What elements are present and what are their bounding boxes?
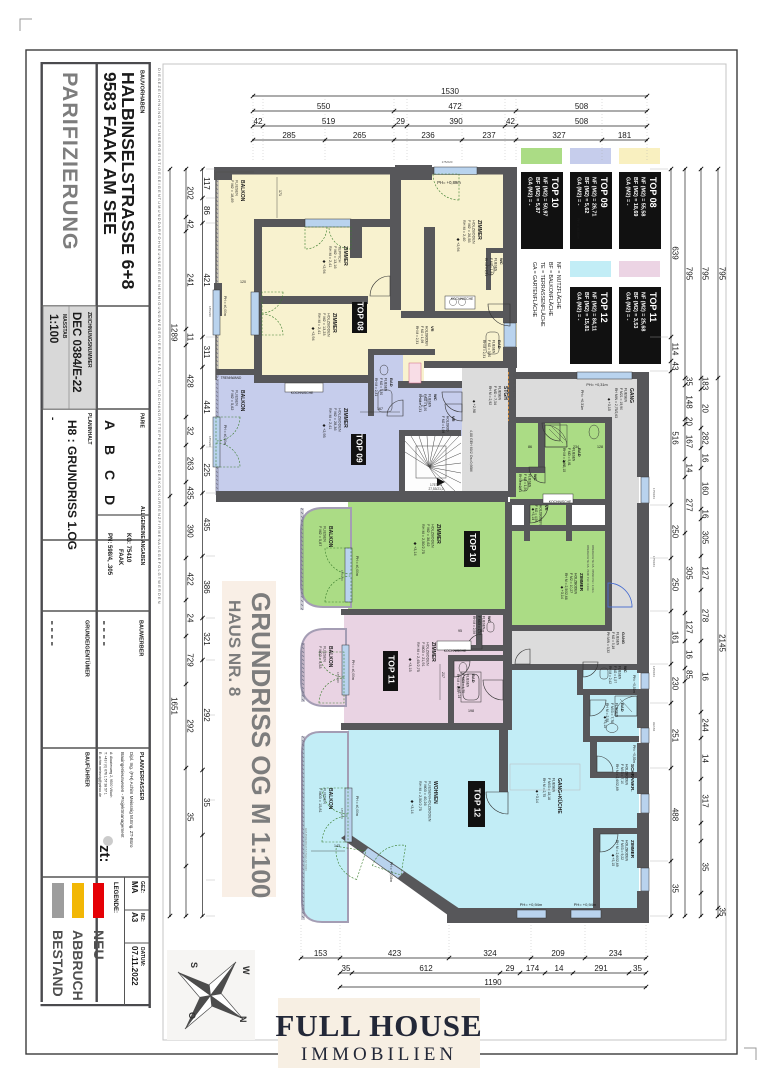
svg-text:174: 174 — [526, 964, 540, 973]
svg-text:FLIESEN/HOLZBODEN: FLIESEN/HOLZBODEN — [427, 781, 431, 822]
svg-text:1651: 1651 — [170, 697, 179, 715]
svg-text:F M2 = 1,98: F M2 = 1,98 — [420, 326, 424, 343]
svg-text:HOLZBODEN: HOLZBODEN — [573, 573, 577, 595]
svg-text:IMMOBILIEN: IMMOBILIEN — [301, 1044, 457, 1065]
svg-text:120: 120 — [240, 280, 246, 284]
svg-text:F MD = 5,81: F MD = 5,81 — [567, 448, 571, 466]
svg-text:1:100: 1:100 — [47, 314, 59, 343]
svg-text:RH M = 2,50/2,75: RH M = 2,50/2,75 — [418, 781, 422, 811]
svg-text:VR: VR — [544, 505, 549, 511]
svg-text:F MD = 7,34: F MD = 7,34 — [493, 386, 497, 405]
svg-text:GANG+KÜCHE: GANG+KÜCHE — [556, 778, 563, 814]
svg-text:F M2 = 28,36: F M2 = 28,36 — [333, 408, 337, 430]
svg-text:42: 42 — [506, 117, 515, 126]
svg-text:171: 171 — [278, 190, 282, 196]
svg-text:F M2 = 3,30: F M2 = 3,30 — [379, 378, 383, 395]
svg-text:795: 795 — [685, 267, 694, 281]
svg-text:292: 292 — [186, 719, 195, 733]
svg-text:PH = ±0,00m: PH = ±0,00m — [351, 660, 355, 680]
svg-text:HOLZBODEN: HOLZBODEN — [624, 764, 628, 786]
svg-text:PH = ±0,00m: PH = ±0,00m — [355, 796, 359, 816]
svg-text:86: 86 — [528, 445, 532, 449]
svg-text:550: 550 — [317, 102, 331, 111]
svg-text:RH M = 2,50/2,75: RH M = 2,50/2,75 — [421, 524, 425, 554]
svg-text:175/220: 175/220 — [442, 160, 453, 164]
svg-text:TOP 08: TOP 08 — [648, 177, 658, 208]
svg-text:265: 265 — [353, 131, 367, 140]
svg-text:237: 237 — [482, 131, 496, 140]
svg-text:BF (M2) = 3,53: BF (M2) = 3,53 — [632, 292, 638, 328]
svg-text:27,53/21,0: 27,53/21,0 — [428, 487, 443, 491]
svg-text:Dipl. Ing. (FH) Achim Meissnig: Dipl. Ing. (FH) Achim Meissnig M.Eng. ZT… — [129, 752, 134, 848]
svg-text:35: 35 — [701, 863, 710, 872]
svg-text:202: 202 — [186, 186, 195, 200]
svg-text:35: 35 — [342, 964, 351, 973]
svg-text:RH MIN = 2,75/2,63: RH MIN = 2,75/2,63 — [614, 388, 618, 418]
svg-text:185/220: 185/220 — [208, 436, 212, 447]
svg-text:NF = NUTZFLÄCHE: NF = NUTZFLÄCHE — [555, 262, 562, 310]
svg-text:20: 20 — [685, 417, 694, 426]
svg-text:F M03 = 21,91: F M03 = 21,91 — [421, 642, 425, 667]
svg-text:TOP 11: TOP 11 — [386, 655, 396, 684]
svg-text:SCHRANKR.: SCHRANKR. — [630, 764, 635, 792]
svg-text:42: 42 — [254, 117, 263, 126]
svg-text:F M2 = 1,50: F M2 = 1,50 — [523, 474, 527, 491]
svg-text:VR: VR — [451, 416, 456, 422]
svg-text:TE = TERRASSENFLÄCHE: TE = TERRASSENFLÄCHE — [539, 262, 546, 327]
svg-text:128: 128 — [597, 445, 603, 449]
svg-text:PH= +0,31m: PH= +0,31m — [580, 390, 584, 410]
svg-text:TOP 10: TOP 10 — [550, 177, 560, 208]
svg-text:◆ +3,15: ◆ +3,15 — [611, 854, 615, 866]
svg-text:RH M = 2,42: RH M = 2,42 — [608, 666, 612, 684]
svg-text:FLIESEN: FLIESEN — [571, 448, 575, 462]
svg-text:161: 161 — [671, 631, 680, 645]
svg-text:BF = BALKONFLÄCHE: BF = BALKONFLÄCHE — [547, 262, 554, 317]
svg-text:GRUNDRISS OG M 1:100: GRUNDRISS OG M 1:100 — [246, 592, 276, 898]
svg-text:PH= +0,92m: PH= +0,92m — [632, 675, 636, 693]
svg-text:HOLZBODEN: HOLZBODEN — [624, 840, 628, 862]
svg-text:PH = ±0,00m: PH = ±0,00m — [576, 218, 580, 239]
svg-text:435: 435 — [202, 518, 211, 532]
svg-text:NF (M2) = 50,97: NF (M2) = 50,97 — [542, 177, 548, 216]
svg-text:117: 117 — [202, 177, 211, 190]
svg-text:FLIESEN: FLIESEN — [322, 646, 326, 662]
svg-text:F M2 = 18,69: F M2 = 18,69 — [230, 180, 234, 202]
svg-text:GA = GARTENFLÄCHE: GA = GARTENFLÄCHE — [531, 262, 538, 318]
svg-text:519: 519 — [322, 117, 336, 126]
svg-text:35: 35 — [633, 964, 642, 973]
svg-text:BF (M2) = 5,62: BF (M2) = 5,62 — [583, 177, 589, 213]
svg-text:35: 35 — [186, 813, 195, 822]
svg-text:A: Akazienweg 2, 9500 Villach: A: Akazienweg 2, 9500 Villach — [109, 752, 113, 797]
svg-text:612: 612 — [419, 964, 433, 973]
svg-text:441: 441 — [202, 400, 211, 414]
svg-text:BAUFÜHRER: BAUFÜHRER — [84, 752, 91, 787]
svg-text:153: 153 — [314, 949, 328, 958]
svg-text:BALKON: BALKON — [327, 788, 333, 810]
svg-text:F M03 = 9,22: F M03 = 9,22 — [620, 840, 624, 860]
svg-text:◆ +3,14: ◆ +3,14 — [410, 800, 414, 814]
svg-text:472: 472 — [448, 102, 462, 111]
svg-text:508: 508 — [575, 102, 589, 111]
svg-text:185/220: 185/220 — [340, 570, 344, 581]
svg-text:NF (M2) = 84,11: NF (M2) = 84,11 — [591, 292, 597, 331]
svg-text:263: 263 — [186, 457, 195, 471]
svg-text:STGH: STGH — [502, 386, 508, 400]
svg-text:F M2 = 26,55: F M2 = 26,55 — [467, 220, 471, 242]
svg-text:NF (M2) = 55,58: NF (M2) = 55,58 — [640, 177, 646, 216]
svg-text:◆ +2,94: ◆ +2,94 — [456, 238, 460, 252]
svg-text:F M03 = 1,57: F M03 = 1,57 — [477, 616, 481, 635]
svg-text:PH = ±0,00m: PH = ±0,00m — [223, 425, 227, 445]
svg-text:WC: WC — [533, 474, 538, 481]
svg-text:GA (M2) = -: GA (M2) = - — [576, 292, 582, 321]
svg-text:F M2 = 5,87: F M2 = 5,87 — [318, 526, 322, 546]
svg-text:◆ +3,14: ◆ +3,14 — [560, 586, 564, 599]
svg-text:24: 24 — [186, 614, 195, 623]
svg-text:16: 16 — [685, 650, 694, 659]
svg-text:BALKON: BALKON — [327, 526, 333, 548]
svg-text:305: 305 — [701, 531, 710, 545]
svg-text:234: 234 — [609, 949, 623, 958]
svg-text:RH M = 2,31: RH M = 2,31 — [482, 340, 486, 358]
svg-text:E: achim.meissnig@yahoo.de: E: achim.meissnig@yahoo.de — [98, 752, 102, 797]
svg-text:ZIMMER: ZIMMER — [342, 246, 348, 266]
svg-text:2145: 2145 — [718, 634, 727, 652]
svg-text:ZIMMER: ZIMMER — [630, 840, 635, 859]
svg-text:42: 42 — [186, 220, 195, 229]
svg-text:DEC 0384/E-22: DEC 0384/E-22 — [70, 312, 82, 393]
svg-text:FLIESEN: FLIESEN — [481, 616, 485, 630]
svg-text:508: 508 — [575, 117, 589, 126]
svg-text:FLIESEN: FLIESEN — [493, 258, 497, 272]
svg-text:F M2 = 1,84: F M2 = 1,84 — [489, 258, 493, 275]
svg-text:390: 390 — [449, 117, 463, 126]
svg-text:HALBINSELSTRASSE 6+8: HALBINSELSTRASSE 6+8 — [118, 72, 138, 290]
svg-text:4,88 GEH 60/2 Os=0,66M: 4,88 GEH 60/2 Os=0,66M — [469, 430, 473, 471]
svg-text:TRENNWAND: TRENNWAND — [221, 376, 242, 380]
svg-text:D I E S E Z E I C H N U N G: D I E S E Z E I C H N U N G I S T U N S … — [157, 68, 162, 604]
svg-text:230: 230 — [671, 677, 680, 691]
svg-text:93/184: 93/184 — [652, 722, 656, 732]
svg-text:11: 11 — [186, 333, 195, 342]
svg-text:FLIESEN: FLIESEN — [617, 666, 621, 680]
svg-text:07.11.2022: 07.11.2022 — [130, 946, 139, 986]
svg-text:O: O — [187, 1012, 197, 1019]
svg-text:16: 16 — [701, 672, 710, 681]
svg-text:PH= +0,94m: PH= +0,94m — [574, 902, 597, 907]
svg-text:GA (M2) = -: GA (M2) = - — [527, 177, 533, 206]
svg-text:GA (M2) = -: GA (M2) = - — [625, 177, 631, 206]
svg-text:35: 35 — [671, 884, 680, 893]
svg-text:277: 277 — [685, 498, 694, 512]
svg-text:RH M = 2,31: RH M = 2,31 — [484, 258, 488, 276]
svg-text:F M2 = 5,62: F M2 = 5,62 — [230, 390, 234, 410]
svg-text:A3: A3 — [130, 912, 139, 923]
svg-text:114: 114 — [671, 343, 680, 356]
svg-text:43: 43 — [671, 362, 680, 371]
svg-text:RH M = 2,60/2,69: RH M = 2,60/2,69 — [615, 764, 619, 791]
svg-text:F M2 = 1,57: F M2 = 1,57 — [613, 666, 617, 683]
svg-text:423: 423 — [388, 949, 402, 958]
svg-text:GRUNDERKATASTER.AKTION: GRUNDERKATASTER.AKTION — [304, 828, 308, 871]
svg-text:FLIESEN: FLIESEN — [527, 474, 531, 488]
svg-text:BAD: BAD — [389, 378, 394, 387]
svg-text:BAD: BAD — [620, 703, 625, 712]
svg-text:HOLZBODEN: HOLZBODEN — [538, 505, 542, 526]
svg-text:125/184: 125/184 — [652, 666, 656, 677]
svg-text:422: 422 — [186, 572, 195, 586]
svg-text:386: 386 — [202, 580, 211, 594]
svg-text:PH= +0,89m: PH= +0,89m — [437, 180, 461, 185]
svg-text:OBERLICHTE CA. 155/90 PH= 3,: OBERLICHTE CA. 155/90 PH= 3,33m — [591, 545, 595, 593]
svg-text:TOP 12: TOP 12 — [599, 292, 609, 323]
svg-text:HOLZBODEN: HOLZBODEN — [430, 524, 434, 548]
svg-text:14: 14 — [685, 464, 694, 473]
svg-text:PARIE: PARIE — [139, 413, 145, 429]
svg-text:FLIESEN: FLIESEN — [491, 340, 495, 354]
svg-text:RH M = 2,41: RH M = 2,41 — [328, 246, 332, 267]
svg-text:795: 795 — [718, 267, 727, 281]
svg-text:-: - — [47, 417, 58, 420]
svg-text:TOP 08: TOP 08 — [355, 302, 365, 331]
svg-text:GA (M2) = -: GA (M2) = - — [576, 177, 582, 206]
svg-text:ZIMMER: ZIMMER — [342, 408, 348, 428]
svg-text:PLANVERFASSER: PLANVERFASSER — [138, 752, 144, 800]
svg-text:LEGENDE:: LEGENDE: — [112, 882, 118, 913]
svg-text:F M03 = 40,26: F M03 = 40,26 — [423, 781, 427, 806]
svg-text:F M21 = 19,90: F M21 = 19,90 — [619, 388, 623, 410]
svg-text:305: 305 — [685, 566, 694, 580]
svg-text:HOLZBODEN: HOLZBODEN — [326, 313, 330, 337]
svg-text:BAD: BAD — [577, 448, 582, 457]
svg-text:FLIESEN: FLIESEN — [322, 526, 326, 542]
svg-text:BAD: BAD — [497, 340, 502, 349]
svg-text:35: 35 — [202, 798, 211, 807]
svg-text:181: 181 — [618, 131, 632, 140]
svg-text:ZIMMER: ZIMMER — [435, 524, 441, 544]
svg-text:HOLZBODEN: HOLZBODEN — [471, 220, 475, 244]
svg-text:185/220: 185/220 — [208, 306, 212, 317]
svg-text:FLIESEN: FLIESEN — [465, 674, 469, 688]
svg-text:278: 278 — [701, 609, 710, 623]
svg-text:241: 241 — [186, 273, 195, 287]
svg-text:327: 327 — [552, 131, 566, 140]
svg-text:WOHNEN: WOHNEN — [432, 781, 438, 804]
svg-text:◆ +3,14: ◆ +3,14 — [457, 686, 461, 698]
svg-text:HOLZBODEN: HOLZBODEN — [337, 408, 341, 432]
svg-text:PH = ±0,00m: PH = ±0,00m — [223, 296, 227, 316]
svg-text:BALKON: BALKON — [239, 180, 245, 202]
svg-text:148: 148 — [685, 395, 694, 409]
svg-text:◆ +2,94: ◆ +2,94 — [322, 260, 326, 274]
svg-text:◆ +3,14: ◆ +3,14 — [531, 508, 535, 520]
svg-text:F M2 = 36,62: F M2 = 36,62 — [426, 524, 430, 546]
svg-text:PARIFIZIERUNG: PARIFIZIERUNG — [58, 72, 82, 251]
svg-text:H8 : GRUNDRISS 1.OG: H8 : GRUNDRISS 1.OG — [65, 420, 79, 550]
svg-text:BF (M2) = 15,81: BF (M2) = 15,81 — [583, 292, 589, 331]
svg-text:167: 167 — [377, 407, 383, 411]
svg-text:RH M = 2,31: RH M = 2,31 — [418, 394, 422, 412]
svg-text:95: 95 — [458, 629, 462, 633]
svg-text:PH = +0,08m: PH = +0,08m — [389, 862, 393, 882]
svg-text:FLIESEN: FLIESEN — [383, 378, 387, 392]
svg-text:FLIESEN: FLIESEN — [234, 390, 238, 406]
svg-text:KOCHNISCHE: KOCHNISCHE — [549, 500, 572, 504]
svg-text:175/184: 175/184 — [652, 488, 656, 499]
svg-text:209: 209 — [551, 949, 565, 958]
svg-text:WC: WC — [487, 616, 492, 623]
svg-text:291: 291 — [594, 964, 608, 973]
svg-text:29: 29 — [396, 117, 405, 126]
svg-text:14: 14 — [701, 754, 710, 763]
svg-text:◆ +3,14: ◆ +3,14 — [413, 542, 417, 556]
svg-text:MA: MA — [130, 881, 139, 894]
svg-text:◆ +3,15: ◆ +3,15 — [603, 716, 607, 728]
svg-text:16: 16 — [701, 454, 710, 463]
svg-text:PLANINHALT: PLANINHALT — [86, 413, 92, 445]
svg-text:236: 236 — [421, 131, 435, 140]
svg-text:PH= +0,31m: PH= +0,31m — [586, 383, 607, 387]
svg-text:F M2 = 5,18: F M2 = 5,18 — [611, 632, 615, 649]
svg-text:16: 16 — [701, 510, 710, 519]
svg-text:zt:: zt: — [96, 845, 113, 863]
svg-text:RH M = 2,58: RH M = 2,58 — [472, 616, 476, 634]
svg-text:RH M = 2,92: RH M = 2,92 — [488, 386, 492, 405]
svg-text:639: 639 — [671, 246, 680, 260]
svg-text:FLIESEN: FLIESEN — [623, 388, 627, 403]
svg-text:29: 29 — [506, 964, 515, 973]
svg-text:TOP 11: TOP 11 — [648, 292, 658, 322]
svg-text:BAUWERBER: BAUWERBER — [138, 620, 144, 656]
svg-text:TOP 10: TOP 10 — [468, 533, 478, 562]
svg-text:428: 428 — [186, 374, 195, 388]
svg-text:292: 292 — [202, 708, 211, 722]
svg-text:ZIMMER: ZIMMER — [331, 313, 337, 333]
svg-text:◆ +3,15: ◆ +3,15 — [562, 460, 566, 472]
svg-text:167: 167 — [685, 435, 694, 449]
svg-text:ZEICHNUNGSNUMMER: ZEICHNUNGSNUMMER — [86, 312, 92, 368]
svg-text:ZIMMER: ZIMMER — [476, 220, 482, 240]
svg-text:STUFE H=17,0: STUFE H=17,0 — [512, 373, 516, 397]
svg-text:◆ +3,15: ◆ +3,15 — [408, 658, 412, 672]
svg-text:PH = ±0,00m: PH = ±0,00m — [355, 556, 359, 576]
svg-text:PH= +0,92m: PH= +0,92m — [632, 745, 636, 763]
svg-text:FLIESEN: FLIESEN — [551, 778, 555, 793]
svg-text:BALKON: BALKON — [327, 646, 333, 668]
svg-text:S: S — [189, 962, 199, 968]
svg-text:◆ +2,98: ◆ +2,98 — [472, 400, 476, 413]
svg-text:HOLZBODEN: HOLZBODEN — [425, 642, 429, 666]
svg-text:BALKON: BALKON — [239, 390, 245, 412]
svg-text:F M03 = 7,10: F M03 = 7,10 — [620, 764, 624, 784]
svg-text:NF (M2) = 25,68: NF (M2) = 25,68 — [640, 292, 646, 331]
svg-text:FULL HOUSE: FULL HOUSE — [275, 1008, 482, 1043]
svg-text:PH MIN = 3,32: PH MIN = 3,32 — [606, 632, 610, 653]
svg-text:1190: 1190 — [484, 978, 502, 987]
svg-text:WC: WC — [499, 258, 504, 265]
svg-text:9583 FAAK AM SEE: 9583 FAAK AM SEE — [100, 72, 120, 235]
svg-text:160: 160 — [701, 482, 710, 496]
svg-text:◆ +2,94: ◆ +2,94 — [311, 327, 315, 341]
svg-text:RH M = 2,31: RH M = 2,31 — [518, 474, 522, 492]
svg-text:F M2 = 1,50: F M2 = 1,50 — [423, 394, 427, 411]
svg-text:RH M = 2,75: RH M = 2,75 — [542, 778, 546, 797]
svg-text:ABBRUCH: ABBRUCH — [70, 930, 86, 1001]
svg-text:TEPPICH: TEPPICH — [337, 246, 341, 263]
svg-text:C: C — [102, 470, 118, 480]
svg-text:282: 282 — [701, 431, 710, 445]
svg-text:TOP 09: TOP 09 — [599, 177, 609, 208]
svg-text:TOP 12: TOP 12 — [472, 788, 482, 817]
svg-text:185/220: 185/220 — [340, 808, 344, 819]
svg-text:FLIESEN: FLIESEN — [614, 703, 618, 718]
svg-text:Bauingenieurwesen - Projektman: Bauingenieurwesen - Projektmanagement — [120, 752, 125, 838]
svg-text:285: 285 — [282, 131, 296, 140]
svg-text:GANG: GANG — [621, 632, 626, 644]
svg-text:F M03 = 3,53: F M03 = 3,53 — [318, 646, 322, 668]
svg-text:◆ +3,15: ◆ +3,15 — [607, 398, 611, 411]
svg-text:FLIESEN: FLIESEN — [322, 788, 326, 804]
svg-text:32: 32 — [186, 427, 195, 436]
svg-text:F M03 = 7,78: F M03 = 7,78 — [610, 703, 614, 723]
svg-text:A: A — [102, 420, 118, 430]
svg-text:244: 244 — [701, 718, 710, 732]
svg-text:B: B — [102, 445, 118, 455]
svg-text:795: 795 — [701, 267, 710, 281]
svg-text:390: 390 — [186, 524, 195, 538]
svg-text:324: 324 — [483, 949, 497, 958]
svg-text:F M2 = 10,27: F M2 = 10,27 — [569, 573, 573, 593]
svg-text:MASSTAB: MASSTAB — [61, 314, 67, 339]
svg-text:185/220: 185/220 — [336, 672, 340, 683]
svg-text:BAD: BAD — [471, 674, 476, 683]
svg-text:ALLGEMEINE ANGABEN: ALLGEMEINE ANGABEN — [139, 506, 145, 566]
svg-text:1289: 1289 — [170, 324, 179, 342]
svg-text:BF (M2) = 5,87: BF (M2) = 5,87 — [534, 177, 540, 213]
svg-text:PN: 598/4, .305: PN: 598/4, .305 — [106, 533, 112, 576]
svg-text:729: 729 — [186, 653, 195, 667]
svg-text:TOP 09: TOP 09 — [354, 434, 364, 463]
svg-text:BF (M2) = 18,69: BF (M2) = 18,69 — [632, 177, 638, 216]
svg-text:321: 321 — [202, 632, 211, 646]
svg-text:435: 435 — [186, 486, 195, 500]
svg-text:F M03 = 15,81: F M03 = 15,81 — [318, 788, 322, 813]
svg-text:RH M = 2,41: RH M = 2,41 — [328, 408, 332, 429]
svg-text:WC: WC — [433, 394, 438, 401]
svg-text:250: 250 — [671, 525, 680, 539]
svg-text:250: 250 — [671, 578, 680, 592]
svg-text:ZIMMER: ZIMMER — [579, 573, 584, 592]
svg-text:RH M = 2,41: RH M = 2,41 — [317, 313, 321, 334]
svg-text:GA (M2) = -: GA (M2) = - — [625, 292, 631, 321]
svg-text:W: W — [241, 966, 251, 975]
svg-text:KOCHNISCHE: KOCHNISCHE — [291, 391, 314, 395]
svg-text:175/184: 175/184 — [652, 556, 656, 567]
svg-text:251: 251 — [671, 729, 680, 743]
svg-text:488: 488 — [671, 808, 680, 822]
svg-text:FLIESEN: FLIESEN — [234, 180, 238, 196]
svg-text:BESTAND: BESTAND — [50, 930, 66, 997]
svg-text:RH M = 2,31: RH M = 2,31 — [415, 326, 419, 344]
svg-text:183: 183 — [701, 377, 710, 391]
svg-text:◆ +3,14: ◆ +3,14 — [535, 790, 539, 803]
svg-text:127: 127 — [701, 566, 710, 580]
svg-text:WC: WC — [623, 666, 628, 673]
svg-text:14: 14 — [555, 964, 564, 973]
svg-text:F M2 = 1,98: F M2 = 1,98 — [441, 416, 445, 433]
